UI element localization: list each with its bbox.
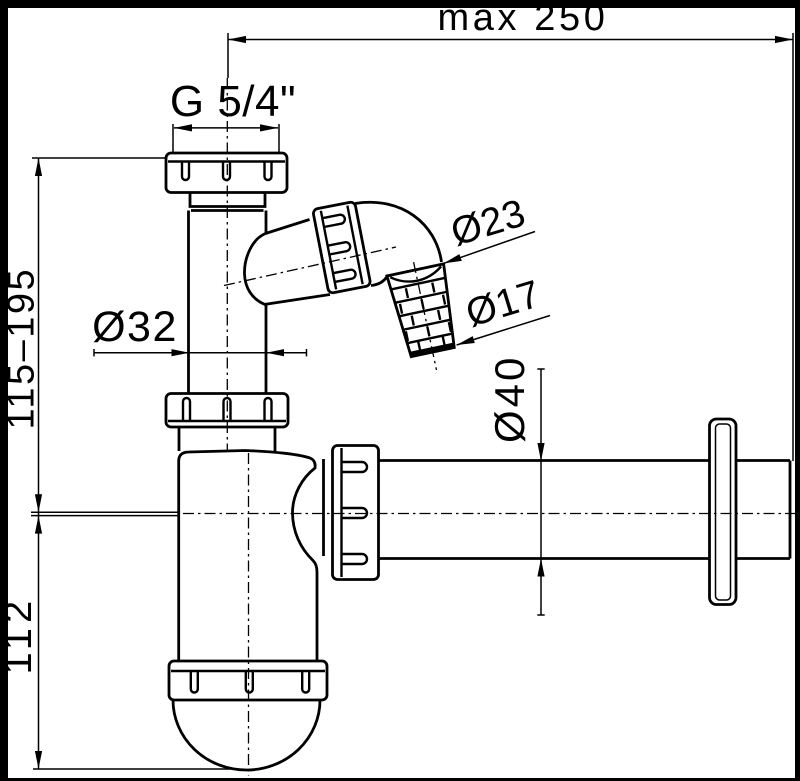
svg-text:Ø32: Ø32 <box>92 303 178 351</box>
svg-text:max 250: max 250 <box>438 0 609 39</box>
svg-text:G 5/4": G 5/4" <box>170 77 296 126</box>
svg-text:Ø23: Ø23 <box>446 191 531 254</box>
svg-text:112: 112 <box>0 596 40 675</box>
svg-text:115–195: 115–195 <box>1 267 43 430</box>
svg-text:Ø17: Ø17 <box>461 272 546 335</box>
svg-text:Ø40: Ø40 <box>486 355 533 443</box>
